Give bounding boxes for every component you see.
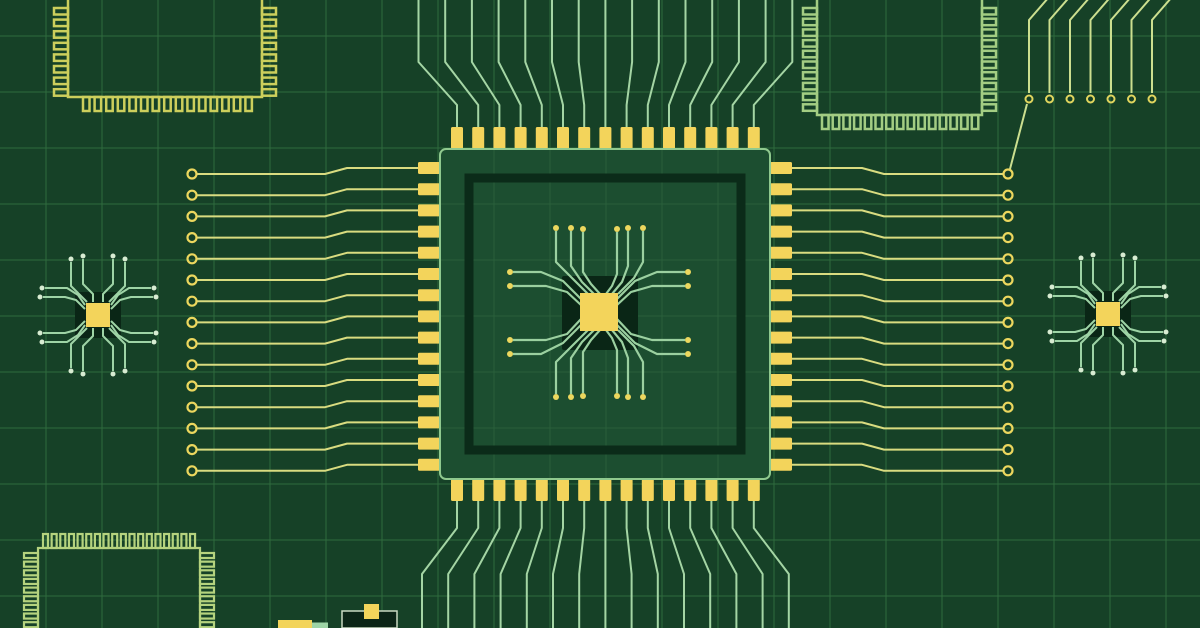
cpu-pin-bottom bbox=[557, 479, 569, 501]
cpu-pin-top bbox=[451, 127, 463, 149]
cpu-pin-bottom bbox=[472, 479, 484, 501]
cpu-pin-top bbox=[578, 127, 590, 149]
die-trace-pad bbox=[553, 394, 559, 400]
die-trace-pad bbox=[507, 283, 513, 289]
spider-trace-tip bbox=[1048, 294, 1053, 299]
die-trace-pad bbox=[685, 351, 691, 357]
pcb-illustration-stage bbox=[0, 0, 1200, 628]
cpu-pin-right bbox=[770, 183, 792, 195]
spider-trace-tip bbox=[154, 331, 159, 336]
cpu-pin-right bbox=[770, 268, 792, 280]
cpu-pin-left bbox=[418, 353, 440, 365]
spider-trace-tip bbox=[1164, 294, 1169, 299]
die-trace-pad bbox=[580, 226, 586, 232]
cpu-pin-bottom bbox=[748, 479, 760, 501]
spider-trace-tip bbox=[40, 340, 45, 345]
cpu-pin-left bbox=[418, 332, 440, 344]
spider-trace-tip bbox=[1091, 371, 1096, 376]
cpu-pin-right bbox=[770, 289, 792, 301]
cpu-pin-bottom bbox=[705, 479, 717, 501]
cpu-pin-bottom bbox=[684, 479, 696, 501]
die-trace-pad bbox=[507, 269, 513, 275]
spider-trace-tip bbox=[111, 372, 116, 377]
cpu-pin-bottom bbox=[727, 479, 739, 501]
die-trace-pad bbox=[625, 225, 631, 231]
cpu-pin-top bbox=[515, 127, 527, 149]
cpu-pin-bottom bbox=[642, 479, 654, 501]
cpu-pin-left bbox=[418, 438, 440, 450]
spider-trace-tip bbox=[123, 257, 128, 262]
spider-die bbox=[1096, 302, 1120, 326]
cpu-pin-right bbox=[770, 162, 792, 174]
die-trace-pad bbox=[507, 337, 513, 343]
cpu-pin-bottom bbox=[621, 479, 633, 501]
spider-trace-tip bbox=[1079, 256, 1084, 261]
spider-trace-tip bbox=[69, 257, 74, 262]
spider-trace-tip bbox=[38, 331, 43, 336]
cpu-pin-right bbox=[770, 395, 792, 407]
cpu-pin-top bbox=[642, 127, 654, 149]
die-trace-pad bbox=[507, 351, 513, 357]
smd-component-green-tab bbox=[312, 623, 328, 628]
die-trace-pad bbox=[614, 393, 620, 399]
cpu-pin-top bbox=[748, 127, 760, 149]
die-trace-pad bbox=[553, 225, 559, 231]
spider-trace-tip bbox=[1050, 339, 1055, 344]
die-trace-pad bbox=[568, 394, 574, 400]
cpu-pin-top bbox=[705, 127, 717, 149]
cpu-pin-right bbox=[770, 374, 792, 386]
spider-trace-tip bbox=[81, 372, 86, 377]
pcb-cpu-circuit-illustration bbox=[0, 0, 1200, 628]
cpu-pin-left bbox=[418, 310, 440, 322]
cpu-pin-left bbox=[418, 459, 440, 471]
cpu-pin-top bbox=[472, 127, 484, 149]
die-trace-pad bbox=[625, 394, 631, 400]
cpu-pin-top bbox=[663, 127, 675, 149]
spider-trace-tip bbox=[1164, 330, 1169, 335]
spider-trace-tip bbox=[38, 295, 43, 300]
cpu-die bbox=[580, 293, 618, 331]
cpu-pin-bottom bbox=[493, 479, 505, 501]
smd-component-box-pad bbox=[364, 604, 379, 619]
die-trace-pad bbox=[685, 337, 691, 343]
die-trace-pad bbox=[580, 393, 586, 399]
cpu-pin-left bbox=[418, 395, 440, 407]
spider-trace-tip bbox=[152, 286, 157, 291]
spider-die bbox=[86, 303, 110, 327]
cpu-pin-bottom bbox=[515, 479, 527, 501]
cpu-pin-right bbox=[770, 459, 792, 471]
cpu-pin-top bbox=[599, 127, 611, 149]
spider-trace-tip bbox=[152, 340, 157, 345]
spider-trace-tip bbox=[111, 254, 116, 259]
cpu-pin-left bbox=[418, 226, 440, 238]
cpu-pin-right bbox=[770, 332, 792, 344]
cpu-pin-top bbox=[684, 127, 696, 149]
spider-trace-tip bbox=[154, 295, 159, 300]
cpu-pin-top bbox=[557, 127, 569, 149]
cpu-pin-bottom bbox=[536, 479, 548, 501]
die-trace-pad bbox=[685, 283, 691, 289]
cpu-pin-left bbox=[418, 268, 440, 280]
cpu-pin-left bbox=[418, 183, 440, 195]
cpu-pin-right bbox=[770, 416, 792, 428]
cpu-pin-top bbox=[493, 127, 505, 149]
spider-trace-tip bbox=[1091, 253, 1096, 258]
cpu-pin-left bbox=[418, 416, 440, 428]
cpu-pin-right bbox=[770, 204, 792, 216]
die-trace-pad bbox=[640, 394, 646, 400]
spider-trace-tip bbox=[1121, 253, 1126, 258]
die-trace-pad bbox=[685, 269, 691, 275]
spider-trace-tip bbox=[1121, 371, 1126, 376]
spider-trace-tip bbox=[1133, 256, 1138, 261]
cpu-pin-bottom bbox=[578, 479, 590, 501]
spider-trace-tip bbox=[1162, 285, 1167, 290]
cpu-pin-right bbox=[770, 353, 792, 365]
die-trace-pad bbox=[568, 225, 574, 231]
die-trace-pad bbox=[640, 225, 646, 231]
spider-trace-tip bbox=[1079, 368, 1084, 373]
spider-trace-tip bbox=[40, 286, 45, 291]
cpu-pin-left bbox=[418, 204, 440, 216]
cpu-pin-left bbox=[418, 289, 440, 301]
cpu-pin-left bbox=[418, 162, 440, 174]
spider-trace-tip bbox=[69, 369, 74, 374]
cpu-pin-left bbox=[418, 374, 440, 386]
cpu-pin-right bbox=[770, 310, 792, 322]
cpu-pin-right bbox=[770, 226, 792, 238]
spider-trace-tip bbox=[1048, 330, 1053, 335]
spider-trace-tip bbox=[81, 254, 86, 259]
cpu-pin-top bbox=[727, 127, 739, 149]
spider-trace-tip bbox=[1162, 339, 1167, 344]
spider-trace-tip bbox=[1050, 285, 1055, 290]
die-trace-pad bbox=[614, 226, 620, 232]
cpu-pin-left bbox=[418, 247, 440, 259]
cpu-pin-bottom bbox=[451, 479, 463, 501]
cpu-pin-top bbox=[621, 127, 633, 149]
spider-trace-tip bbox=[1133, 368, 1138, 373]
cpu-pin-right bbox=[770, 438, 792, 450]
smd-component-yellow-bar bbox=[278, 620, 312, 628]
cpu-pin-top bbox=[536, 127, 548, 149]
spider-trace-tip bbox=[123, 369, 128, 374]
cpu-pin-bottom bbox=[663, 479, 675, 501]
cpu-pin-right bbox=[770, 247, 792, 259]
cpu-pin-bottom bbox=[599, 479, 611, 501]
